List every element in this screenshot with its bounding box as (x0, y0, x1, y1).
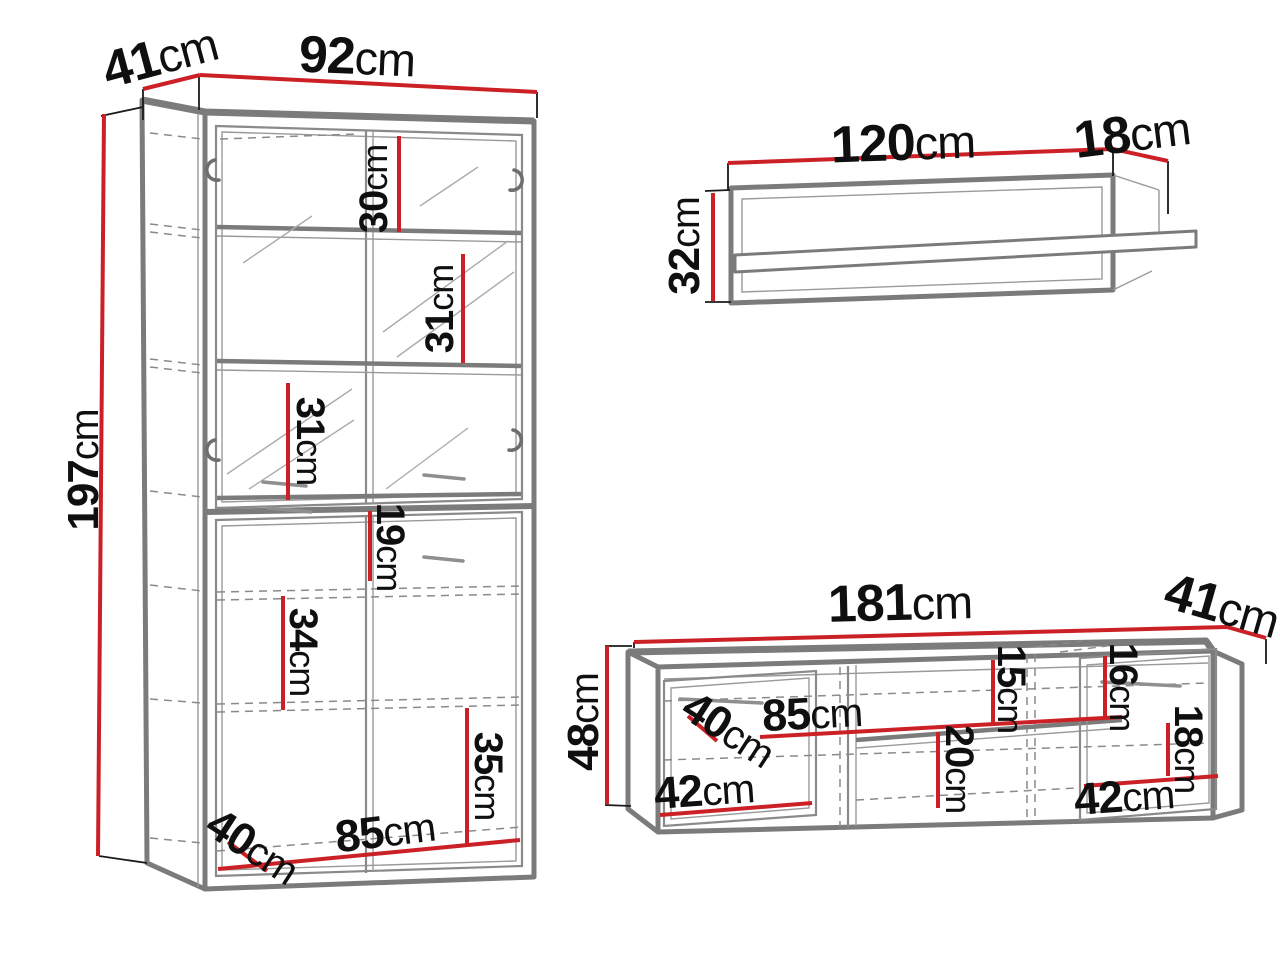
dim-cabinet-lower-shelf-bottom: 35cm (468, 732, 508, 821)
dim-tv-stand-middle-top-gap: 15cm (991, 645, 1031, 734)
wall-shelf-drawing (705, 149, 1196, 303)
dim-tv-stand-right-door-width: 42cm (1073, 770, 1176, 822)
dim-cabinet-lower-shelf-middle: 34cm (283, 608, 323, 697)
dim-tv-stand-right-middle-gap: 18cm (1168, 705, 1208, 794)
dim-tv-stand-width: 181cm (827, 575, 972, 631)
dim-wall-shelf-height: 32cm (663, 197, 707, 295)
dim-wall-shelf-width: 120cm (830, 115, 976, 172)
dim-cabinet-glass-shelf-top: 30cm (354, 145, 394, 234)
dim-cabinet-lower-top-gap: 19cm (370, 503, 410, 592)
dim-cabinet-glass-shelf-bottom: 31cm (290, 397, 330, 486)
dim-tv-stand-middle-bottom-gap: 20cm (939, 725, 979, 814)
dim-tv-stand-right-top-gap: 16cm (1103, 643, 1143, 732)
dim-cabinet-height: 197cm (62, 409, 106, 530)
dim-cabinet-interior-width: 85cm (333, 803, 438, 860)
dim-tv-stand-middle-width: 85cm (761, 688, 863, 738)
dim-cabinet-width: 92cm (298, 28, 416, 85)
dim-tv-stand-height: 48cm (562, 673, 606, 771)
dim-tv-stand-left-door-width: 42cm (653, 764, 756, 816)
dim-cabinet-glass-shelf-middle: 31cm (420, 265, 460, 354)
furniture-dimension-diagram: 41cm 92cm 197cm 30cm 31cm 31cm 19cm 34cm… (0, 0, 1280, 960)
